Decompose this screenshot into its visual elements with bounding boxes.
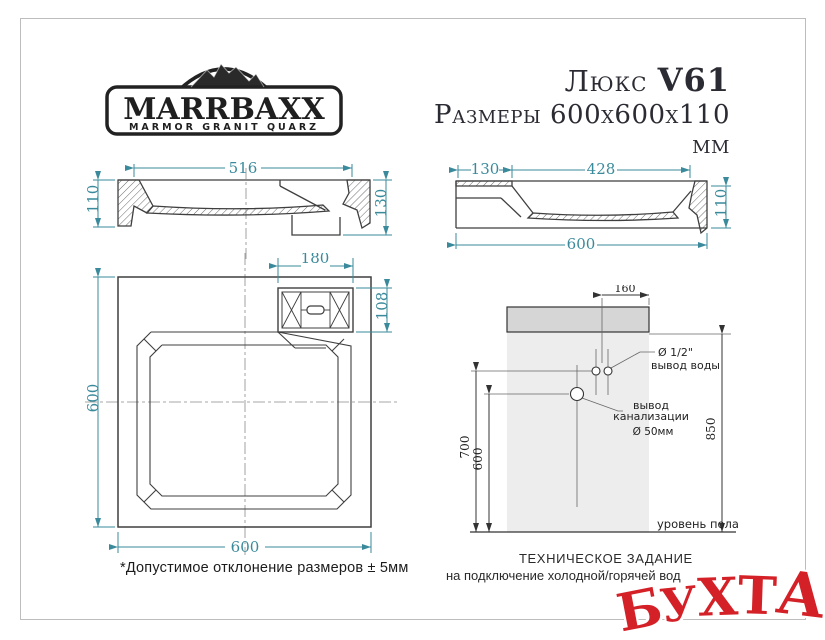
watermark: БУХТА	[615, 558, 825, 640]
dim-516: 516	[229, 160, 258, 177]
dim-600-left: 600	[85, 384, 102, 413]
front-section-view: 516 110 130	[85, 160, 400, 265]
dim-160: 160	[615, 285, 636, 295]
dim-108: 108	[373, 292, 391, 321]
sewer-outlet	[571, 388, 584, 401]
dim-600: 600	[567, 235, 596, 253]
tolerance-note: *Допустимое отклонение размеров ± 5мм	[120, 560, 409, 576]
side-section-view: 130 428 110 600	[445, 160, 740, 260]
title-block: Люкс V61 Размеры 600х600х110 мм	[400, 64, 730, 160]
dim-600-bottom: 600	[231, 538, 260, 556]
installation-diagram: 160 700 600 850 Ø 1/2" вывод воды вывод …	[455, 285, 815, 545]
water-outlet-left	[592, 367, 600, 375]
top-view: 180 600 108 600	[85, 253, 400, 588]
dimensions-label: Размеры 600х600х110 мм	[400, 100, 730, 160]
sewer-dia-label: Ø 50мм	[633, 426, 674, 438]
water-dia-label: Ø 1/2"	[658, 346, 693, 359]
floor-label: уровень пола	[657, 517, 739, 531]
sink-silhouette	[507, 307, 649, 332]
water-out-label: вывод воды	[651, 359, 720, 372]
dim-428: 428	[587, 160, 616, 178]
brand-logo: MARRBAXX MARMOR GRANIT QUARZ	[103, 58, 345, 148]
dim-700: 700	[458, 436, 472, 459]
overflow-slot	[307, 306, 324, 314]
dim-180: 180	[301, 253, 330, 267]
brand-tagline: MARMOR GRANIT QUARZ	[129, 122, 319, 133]
drawing-sheet: MARRBAXX MARMOR GRANIT QUARZ Люкс V61 Ра…	[0, 0, 825, 640]
sink-profile	[456, 181, 707, 233]
dim-110-left: 110	[85, 185, 102, 214]
water-outlet-right	[604, 367, 612, 375]
dim-130-right: 130	[372, 189, 390, 218]
dim-130: 130	[471, 160, 500, 178]
model-name: Люкс	[565, 64, 648, 98]
dim-600: 600	[471, 448, 485, 471]
sewer-label-2: канализации	[613, 410, 689, 423]
dim-110: 110	[712, 189, 730, 218]
overflow-box	[278, 288, 353, 332]
dim-850: 850	[704, 418, 718, 441]
pedestal-silhouette	[507, 332, 649, 532]
model-title: Люкс V61	[400, 64, 730, 98]
sink-profile	[118, 180, 370, 235]
model-code: V61	[658, 61, 730, 99]
